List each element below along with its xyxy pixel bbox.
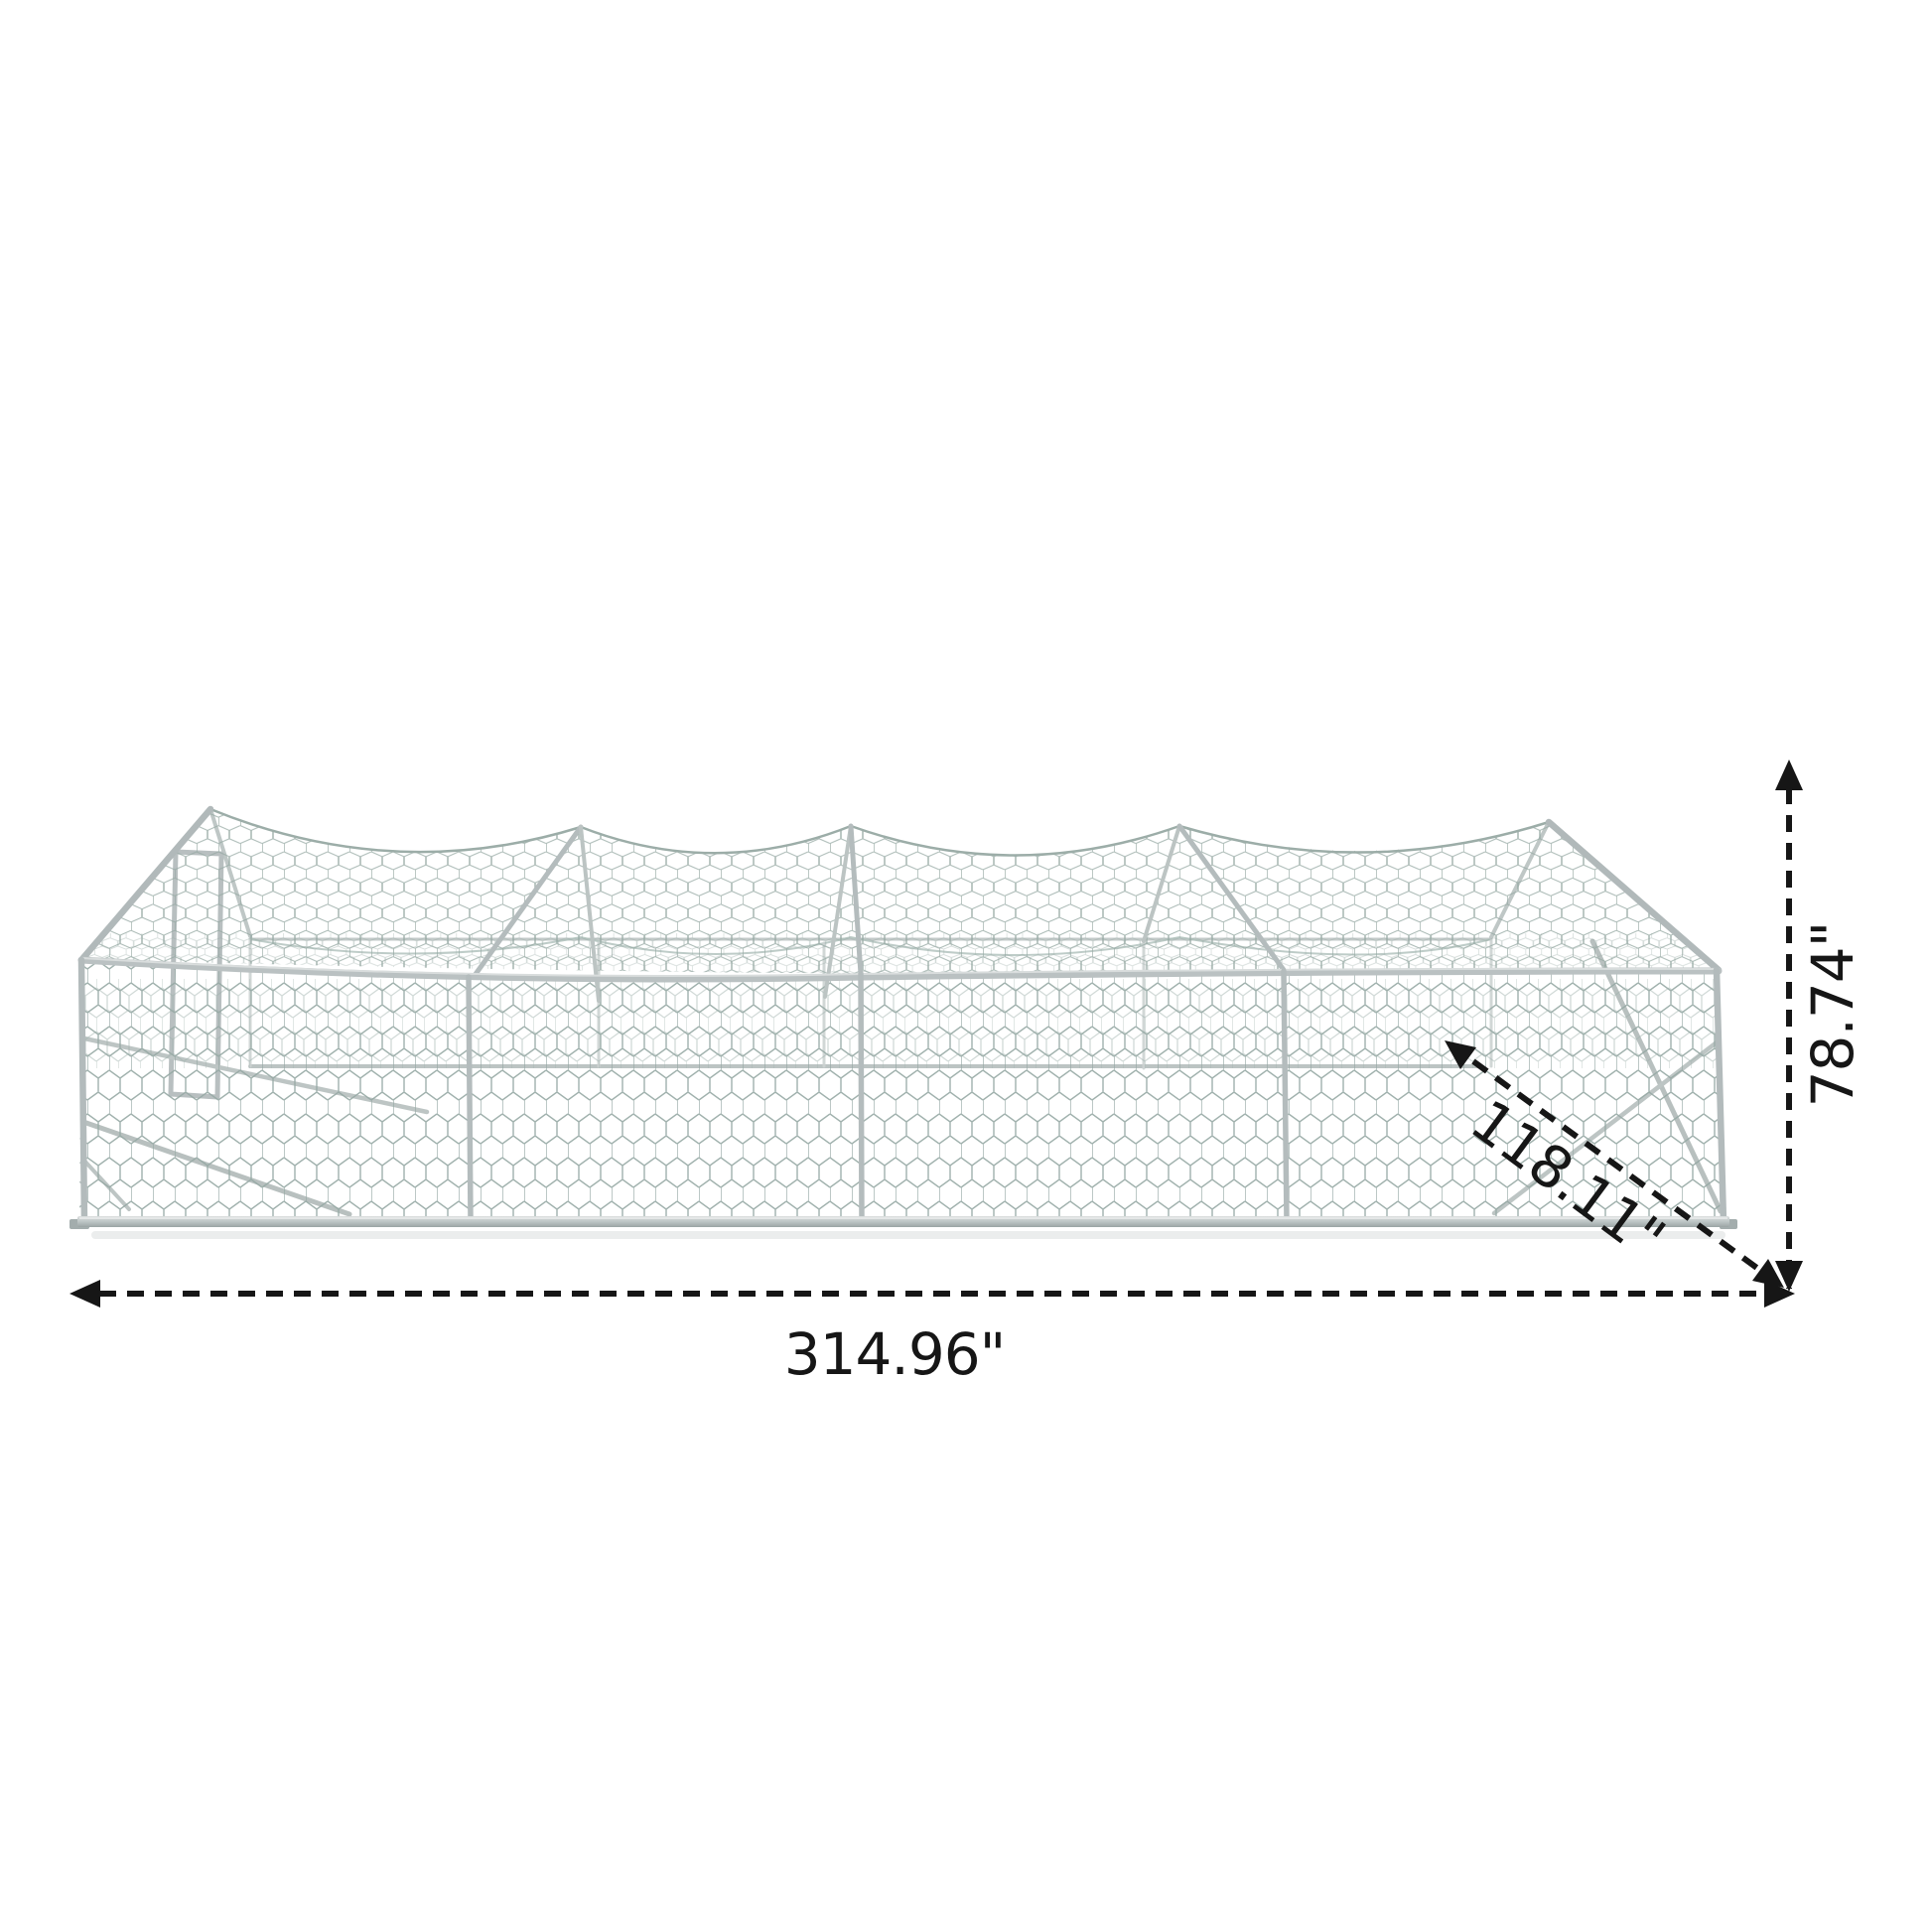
dimension-diagram-canvas: 314.96" 78.74" 118.11" [0,0,1932,1932]
height-dimension: 78.74" [1775,759,1866,1292]
cage-mesh [79,809,1725,1222]
width-dimension: 314.96" [69,1280,1795,1388]
arrow-left-icon [69,1280,100,1308]
height-dimension-label: 78.74" [1799,922,1866,1108]
arrow-up-icon [1775,759,1803,790]
width-dimension-label: 314.96" [784,1320,1006,1388]
ground-shadow [91,1231,1725,1239]
dimension-diagram-page: 314.96" 78.74" 118.11" [0,0,1932,1932]
double-layer-mesh-band [83,979,1718,1068]
cage-illustration [69,809,1737,1239]
